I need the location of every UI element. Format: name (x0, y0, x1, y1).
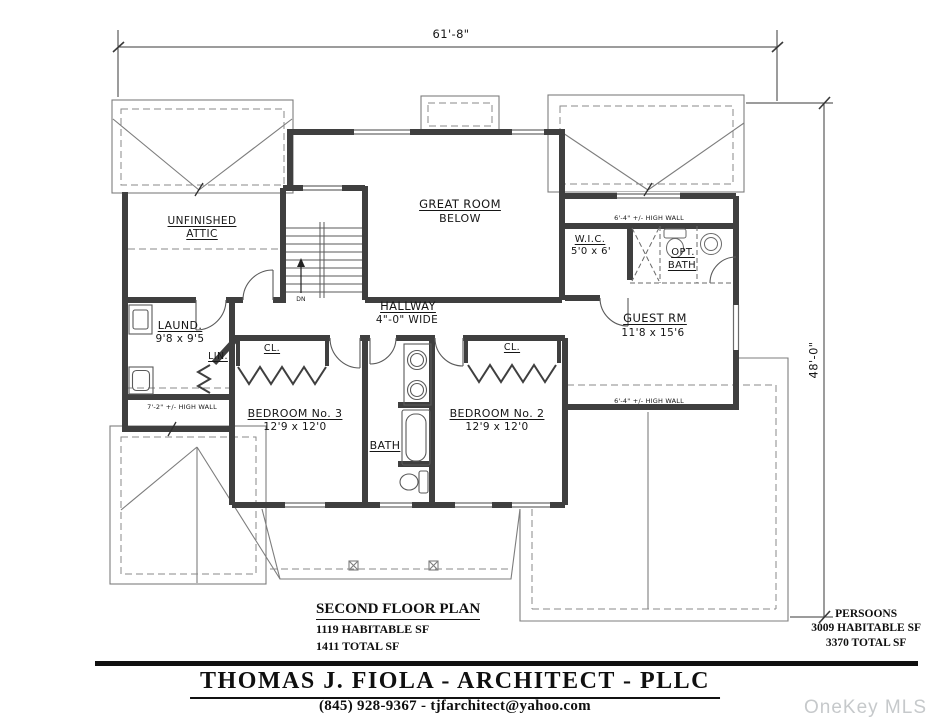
room-label-linen: LIN. (208, 352, 228, 362)
room-label-great-room-below: BELOW (439, 213, 481, 224)
room-label-opt-bath-line1: OPT. (671, 248, 695, 258)
plan-habitable-sf: 1119 HABITABLE SF (316, 622, 480, 637)
room-label-bedroom2: BEDROOM No. 2 (450, 408, 545, 419)
bath-fixtures (400, 344, 431, 493)
room-label-hallway: HALLWAY (380, 301, 436, 313)
floor-plan-page: 61'-8" 48'-0" UNFINISHED ATTIC GREAT ROO… (0, 0, 931, 720)
room-label-wic: W.I.C. (575, 235, 606, 245)
room-label-closet-bed2: CL. (504, 343, 520, 353)
high-wall-note-lower-right: 6'-4" +/- HIGH WALL (614, 398, 684, 405)
stairs (286, 222, 362, 298)
room-label-unfinished-attic-line2: ATTIC (186, 229, 217, 240)
title-block-rule (95, 661, 918, 666)
room-label-bath: BATH (370, 440, 401, 451)
room-size-hallway: 4"-0" WIDE (376, 315, 438, 326)
dim-width-label: 61'-8" (433, 29, 470, 41)
room-size-bedroom3: 12'9 x 12'0 (263, 422, 326, 433)
room-label-laundry: LAUND. (158, 320, 203, 331)
high-wall-note-upper-right: 6'-4" +/- HIGH WALL (614, 215, 684, 222)
dimension-lines (113, 30, 833, 623)
high-wall-note-left: 7'-2" +/- HIGH WALL (147, 404, 217, 411)
watermark: OneKey MLS (804, 697, 927, 719)
architect-name: THOMAS J. FIOLA - ARCHITECT - PLLC (190, 668, 720, 699)
room-size-guest: 11'8 x 15'6 (621, 328, 684, 339)
project-name: PERSOONS (811, 607, 921, 621)
room-label-bedroom3: BEDROOM No. 3 (248, 408, 343, 419)
plan-total-sf: 1411 TOTAL SF (316, 639, 480, 654)
project-habitable-sf: 3009 HABITABLE SF (811, 621, 921, 635)
room-size-bedroom2: 12'9 x 12'0 (465, 422, 528, 433)
project-totals-block: PERSOONS 3009 HABITABLE SF 3370 TOTAL SF (811, 607, 921, 650)
laundry-fixtures (129, 305, 153, 394)
plan-title: SECOND FLOOR PLAN (316, 601, 480, 620)
room-label-opt-bath-line2: BATH (668, 261, 696, 271)
room-label-closet-bed3: CL. (264, 344, 280, 354)
architect-contact: (845) 928-9367 - tjfarchitect@yahoo.com (319, 698, 591, 715)
dim-height-label: 48'-0" (808, 342, 820, 379)
room-label-great-room: GREAT ROOM (419, 199, 501, 211)
room-label-unfinished-attic-line1: UNFINISHED (168, 216, 237, 227)
room-size-wic: 5'0 x 6' (571, 247, 611, 257)
project-total-sf: 3370 TOTAL SF (811, 636, 921, 650)
room-size-laundry: 9'8 x 9'5 (156, 334, 205, 345)
stairs-dn-note: DN (296, 297, 306, 303)
room-label-guest: GUEST RM (623, 313, 687, 325)
plan-title-block: SECOND FLOOR PLAN 1119 HABITABLE SF 1411… (316, 600, 480, 654)
